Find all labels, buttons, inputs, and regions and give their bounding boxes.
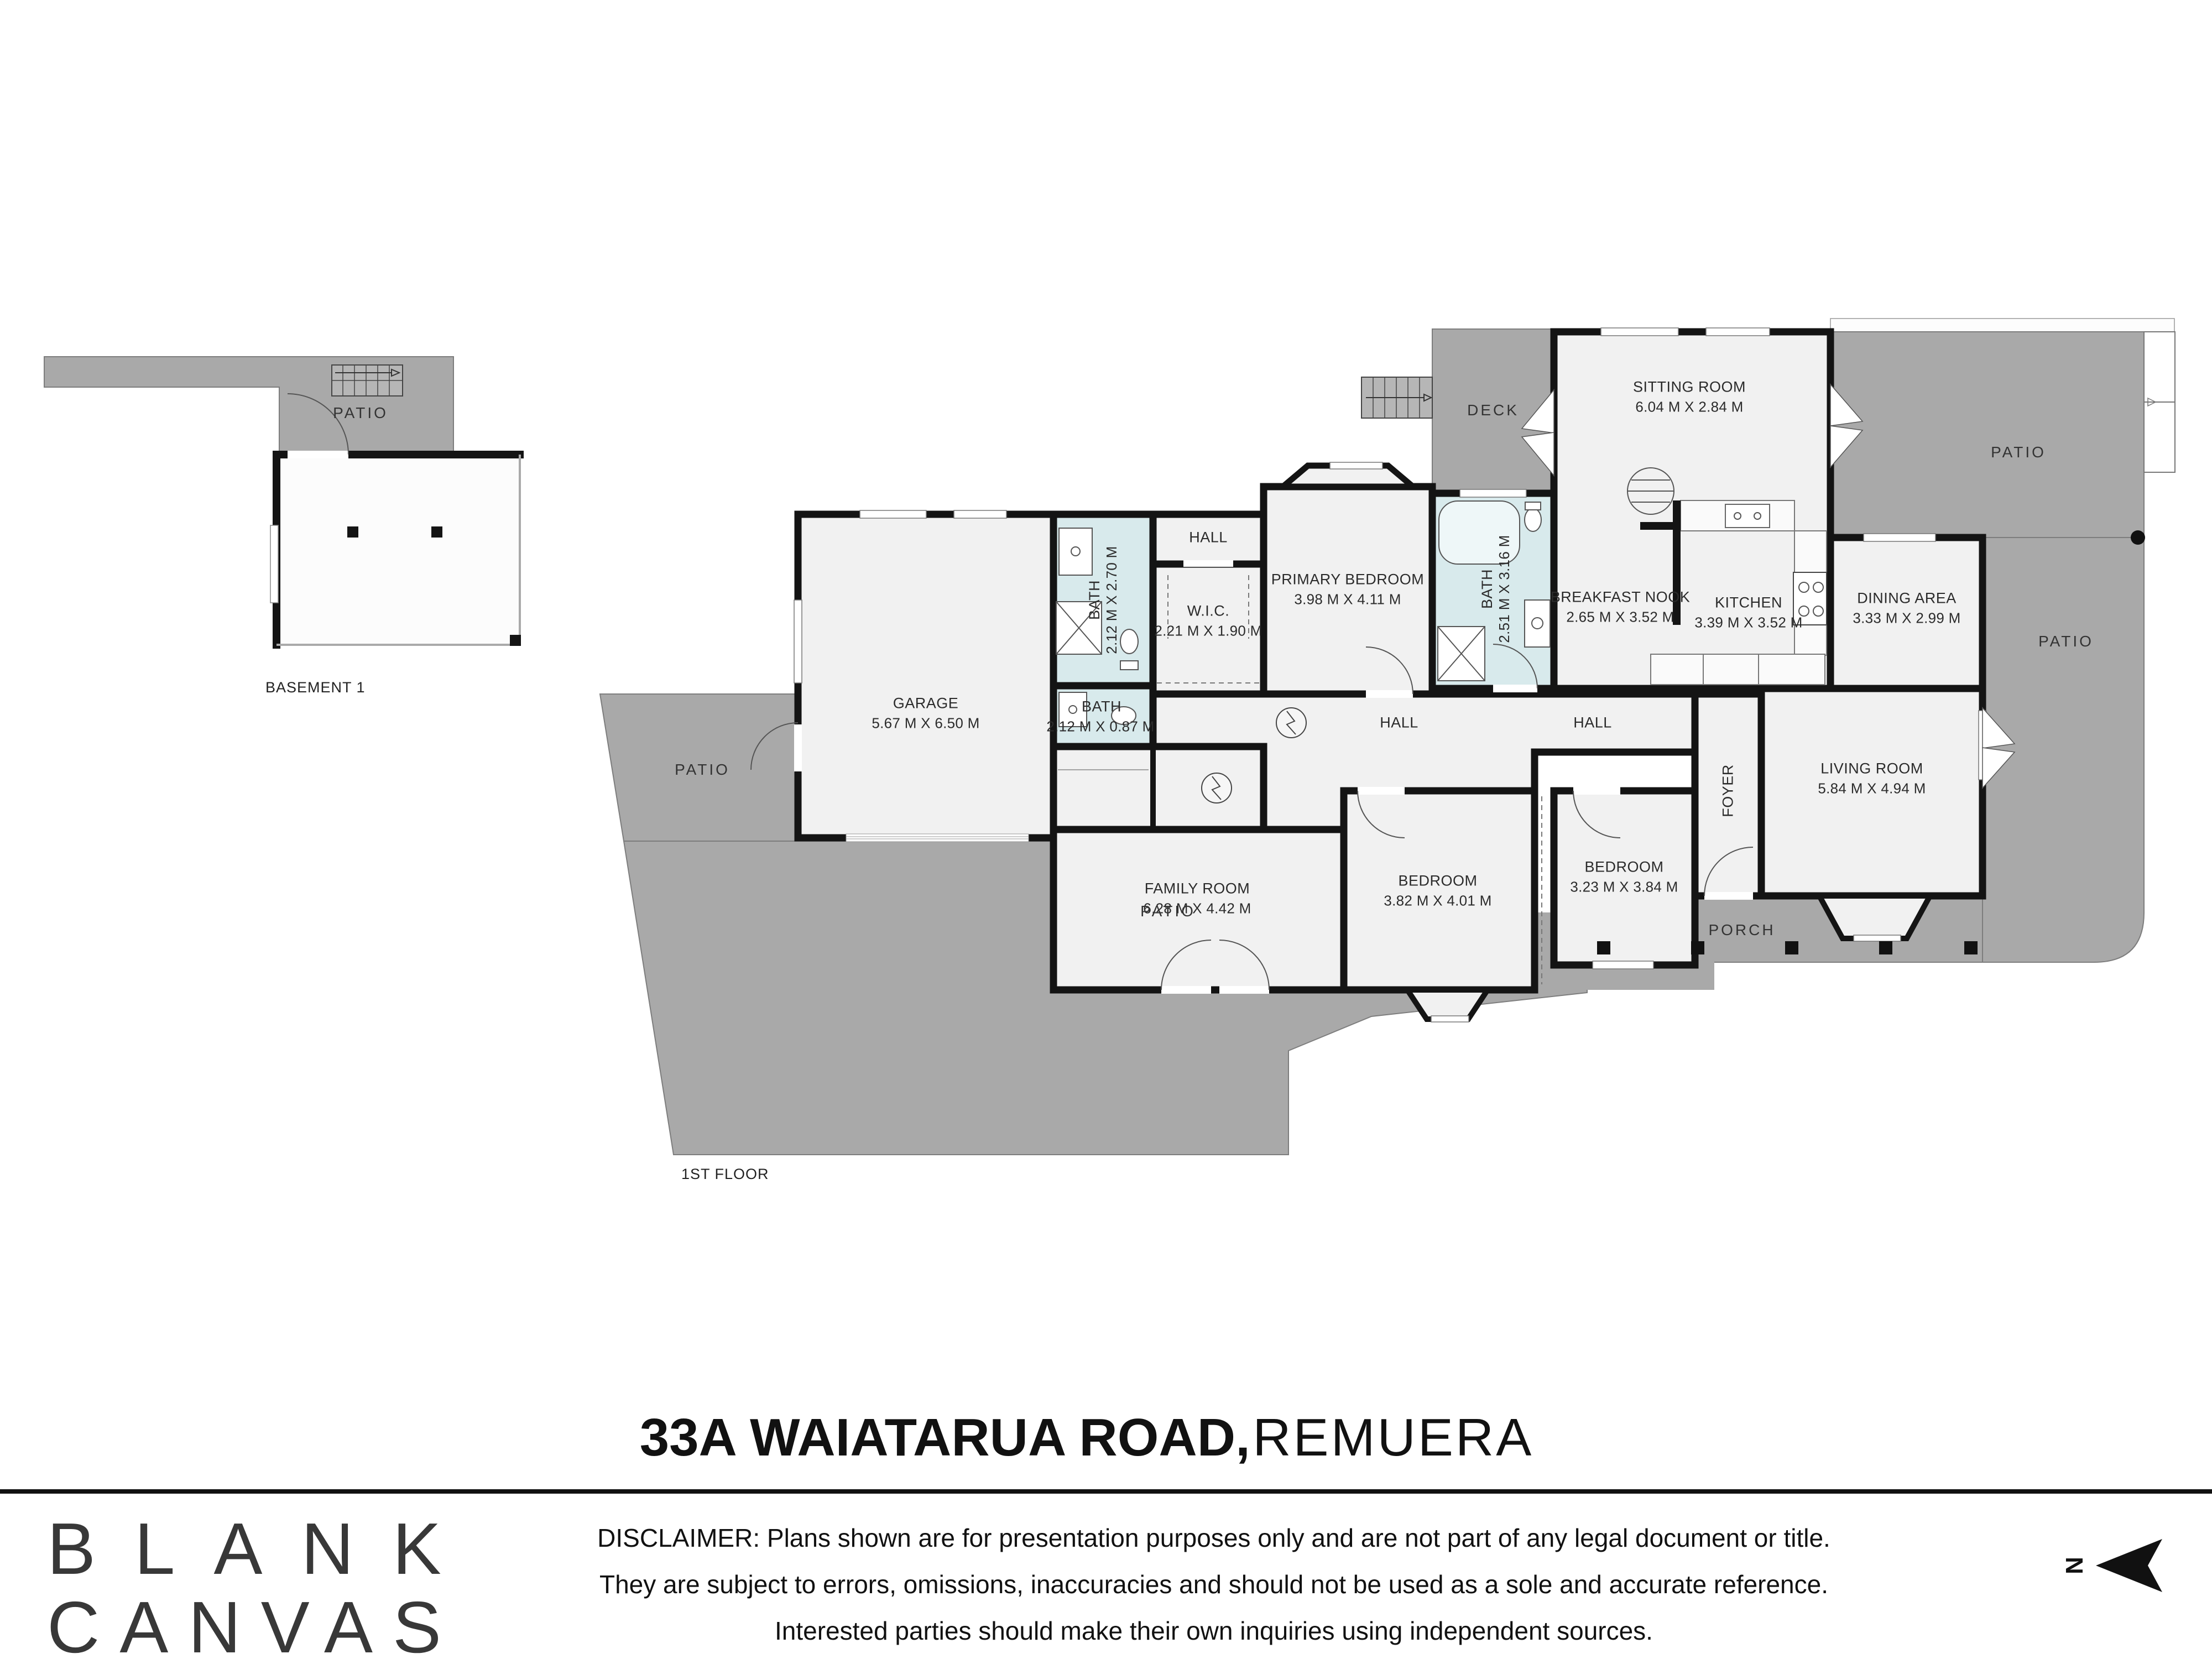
deck-stairs-icon <box>1361 377 1432 418</box>
patio-left-label: PATIO <box>675 761 730 779</box>
disclaimer-line2: They are subject to errors, omissions, i… <box>597 1561 1830 1608</box>
bath-ensuite-dims: 2.12 M X 2.70 M <box>1103 546 1120 654</box>
bedroom2-room <box>1554 791 1695 965</box>
pergola-structure <box>2144 332 2175 472</box>
wic-label: W.I.C. <box>1187 603 1230 620</box>
garage-dims: 5.67 M X 6.50 M <box>872 715 979 732</box>
north-label: N <box>2061 1557 2089 1574</box>
patio-right-label: PATIO <box>2038 633 2094 650</box>
bath-ensuite-label: BATH <box>1086 546 1103 654</box>
hall-right-label: HALL <box>1573 714 1612 732</box>
wic-dims: 2.21 M X 1.90 M <box>1154 623 1262 640</box>
disclaimer-line1: DISCLAIMER: Plans shown are for presenta… <box>597 1515 1830 1561</box>
garage-door <box>846 834 1029 842</box>
foyer-label: FOYER <box>1720 764 1737 817</box>
basement-floor-label: BASEMENT 1 <box>265 679 366 696</box>
basement-patio-label: PATIO <box>333 404 388 422</box>
basement-column <box>347 526 358 538</box>
floor-plan-page: PATIO BASEMENT 1 GARAGE 5.67 M X 6.50 M … <box>0 0 2212 1659</box>
sitting-room-dims: 6.04 M X 2.84 M <box>1635 399 1743 416</box>
boundary-dot <box>2131 530 2145 545</box>
garage-room <box>798 514 1053 838</box>
disclaimer-text: DISCLAIMER: Plans shown are for presenta… <box>597 1515 1830 1654</box>
sitting-room-label: SITTING ROOM <box>1633 379 1746 396</box>
living-room-dims: 5.84 M X 4.94 M <box>1818 780 1926 797</box>
kitchen-dims: 3.39 M X 3.52 M <box>1694 614 1802 632</box>
basement-window <box>270 525 278 603</box>
bath-small-label: BATH <box>1082 698 1121 716</box>
bedroom1-dims: 3.82 M X 4.01 M <box>1384 893 1491 910</box>
primary-bedroom-dims: 3.98 M X 4.11 M <box>1294 591 1401 608</box>
bath-main-label: BATH <box>1479 535 1496 643</box>
living-room-label: LIVING ROOM <box>1820 760 1923 778</box>
bath-main-dims: 2.51 M X 3.16 M <box>1496 535 1513 643</box>
garage-label: GARAGE <box>893 695 959 712</box>
porch-label: PORCH <box>1708 921 1775 939</box>
title-suburb: REMUERA <box>1253 1408 1533 1467</box>
bath-small-dims: 2.12 M X 0.87 M <box>1046 718 1154 735</box>
patio-right-area <box>1983 538 2144 962</box>
deck-label: DECK <box>1467 401 1519 419</box>
logo-line2: CANVAS <box>47 1591 480 1659</box>
bedroom1-bay-window <box>1407 990 1488 1019</box>
dining-area-label: DINING AREA <box>1857 590 1957 607</box>
basement-column <box>431 526 442 538</box>
kitchen-counter <box>1651 654 1825 685</box>
basement-plan <box>44 357 524 649</box>
page-title: 33A WAIATARUA ROAD, REMUERA <box>640 1407 1534 1468</box>
primary-bedroom-label: PRIMARY BEDROOM <box>1271 571 1425 588</box>
dining-area-dims: 3.33 M X 2.99 M <box>1853 610 1960 627</box>
bedroom2-label: BEDROOM <box>1584 859 1663 876</box>
primary-bedroom-room <box>1264 487 1432 694</box>
blank-canvas-logo: BLANK CANVAS <box>47 1512 480 1659</box>
patio-bottom-label: PATIO <box>1140 902 1196 920</box>
bath-main-label-group: BATH 2.51 M X 3.16 M <box>1479 535 1513 643</box>
north-arrow-icon <box>2096 1539 2162 1592</box>
divider-line <box>0 1489 2212 1494</box>
bath-ensuite-label-group: BATH 2.12 M X 2.70 M <box>1086 546 1120 654</box>
kitchen-divider-wall <box>1673 500 1681 625</box>
breakfast-nook-dims: 2.65 M X 3.52 M <box>1566 609 1674 626</box>
patio-topright-area <box>1830 332 2144 538</box>
toilet-icon <box>1525 508 1541 531</box>
logo-line1: BLANK <box>47 1512 480 1585</box>
bedroom2-dims: 3.23 M X 3.84 M <box>1570 879 1678 896</box>
bedroom1-label: BEDROOM <box>1398 873 1477 890</box>
kitchen-sink-icon <box>1725 504 1770 528</box>
breakfast-nook-label: BREAKFAST NOOK <box>1551 589 1691 606</box>
vanity-icon <box>1525 600 1550 647</box>
first-floor-label: 1ST FLOOR <box>681 1166 769 1183</box>
toilet-icon <box>1120 629 1138 654</box>
title-address: 33A WAIATARUA ROAD, <box>640 1408 1250 1467</box>
hall-upper-label: HALL <box>1189 529 1228 546</box>
hall-middle-label: HALL <box>1380 714 1418 732</box>
kitchen-label: KITCHEN <box>1715 594 1782 612</box>
nook-divider-wall <box>1640 522 1673 530</box>
basement-stairs-icon <box>332 365 403 396</box>
disclaimer-line3: Interested parties should make their own… <box>597 1608 1830 1654</box>
family-room-label: FAMILY ROOM <box>1145 880 1250 898</box>
bedroom1-room <box>1344 791 1535 990</box>
patio-topright-label: PATIO <box>1991 444 2046 461</box>
